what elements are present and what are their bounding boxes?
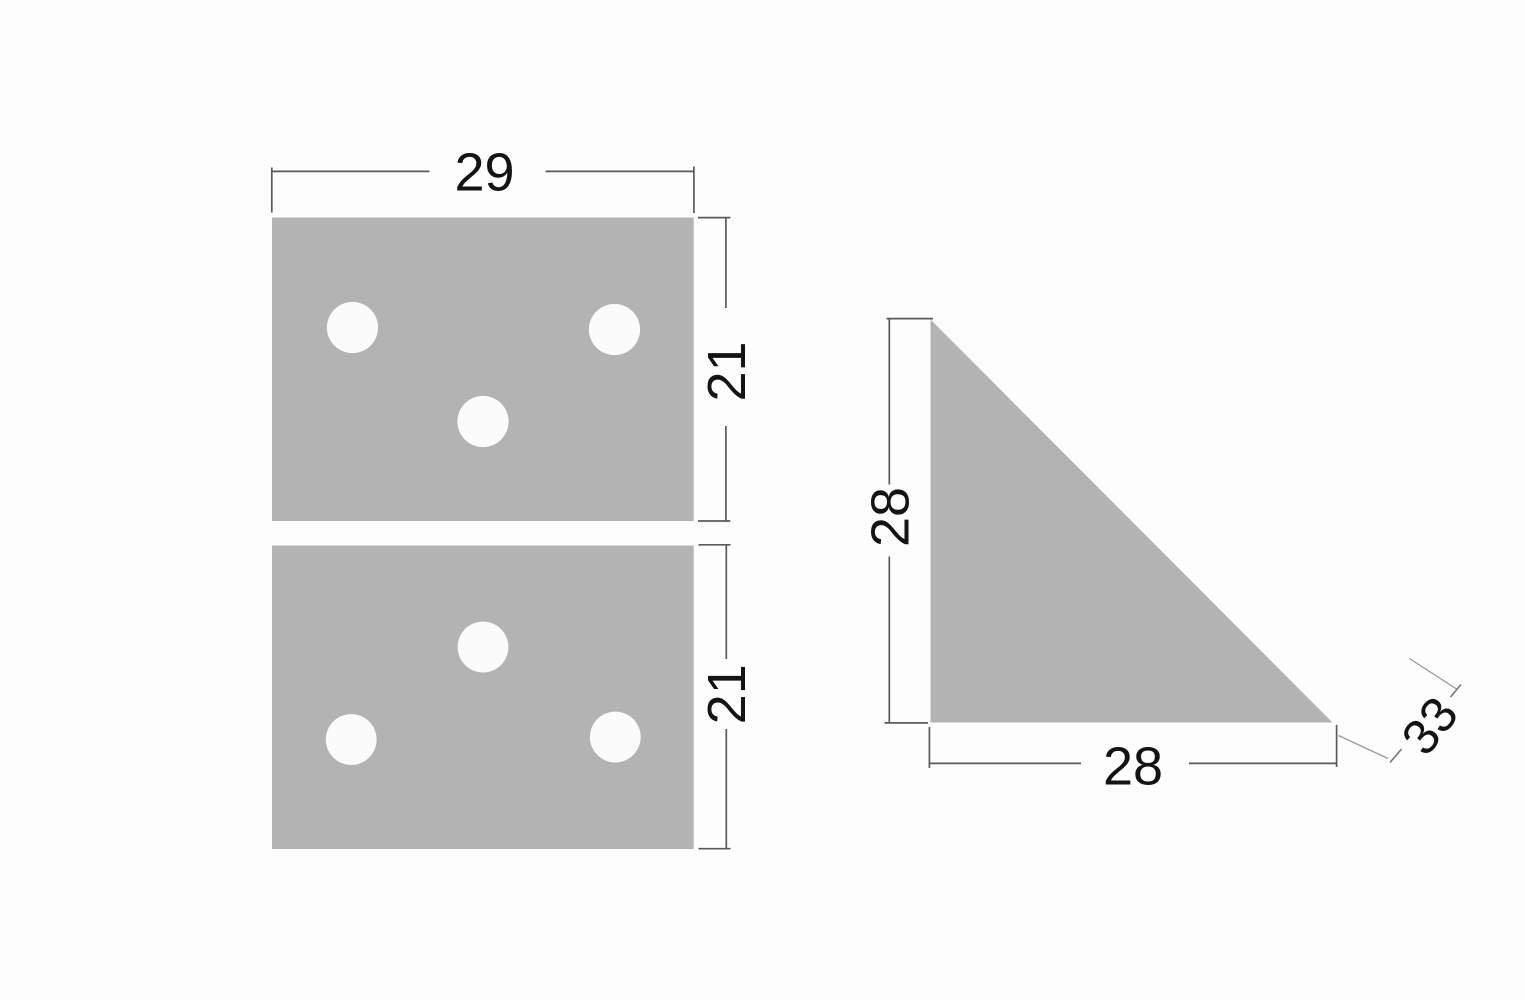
svg-text:21: 21	[697, 341, 757, 401]
svg-text:21: 21	[697, 664, 757, 724]
svg-text:28: 28	[1103, 737, 1163, 797]
svg-text:29: 29	[454, 143, 514, 203]
svg-text:28: 28	[860, 487, 920, 547]
